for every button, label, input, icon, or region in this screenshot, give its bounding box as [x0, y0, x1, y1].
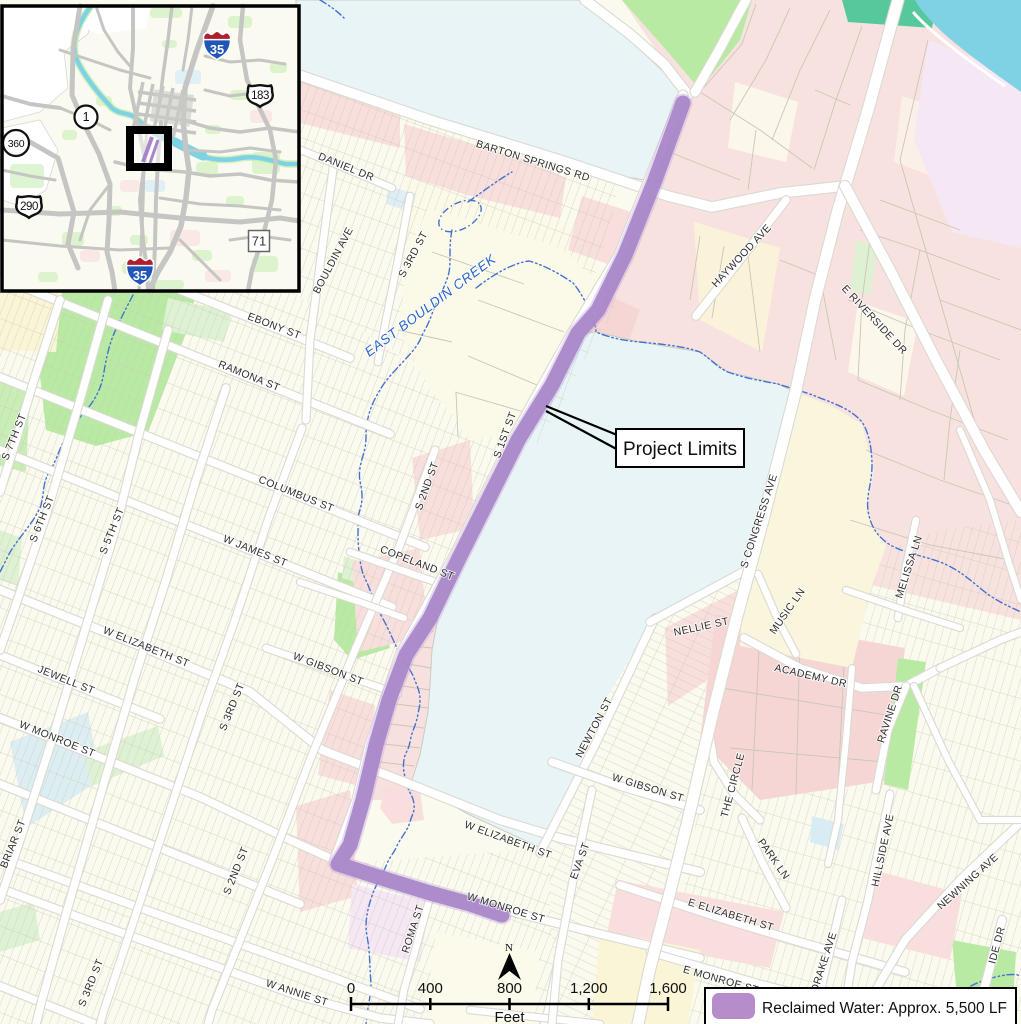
svg-text:0: 0	[347, 980, 355, 997]
svg-text:Project Limits: Project Limits	[623, 439, 737, 460]
svg-text:71: 71	[252, 234, 266, 249]
svg-text:Feet: Feet	[494, 1009, 525, 1024]
svg-text:400: 400	[418, 980, 443, 997]
svg-text:1,600: 1,600	[649, 980, 687, 997]
svg-text:290: 290	[20, 201, 38, 213]
svg-text:35: 35	[133, 268, 147, 283]
svg-text:1,200: 1,200	[570, 980, 608, 997]
svg-text:Reclaimed Water: Approx. 5,500: Reclaimed Water: Approx. 5,500 LF	[762, 1000, 1007, 1017]
svg-text:1: 1	[83, 110, 90, 124]
svg-text:183: 183	[251, 90, 269, 102]
svg-text:800: 800	[497, 980, 522, 997]
svg-text:35: 35	[210, 42, 224, 57]
svg-text:N: N	[505, 942, 513, 954]
svg-text:360: 360	[8, 138, 25, 150]
